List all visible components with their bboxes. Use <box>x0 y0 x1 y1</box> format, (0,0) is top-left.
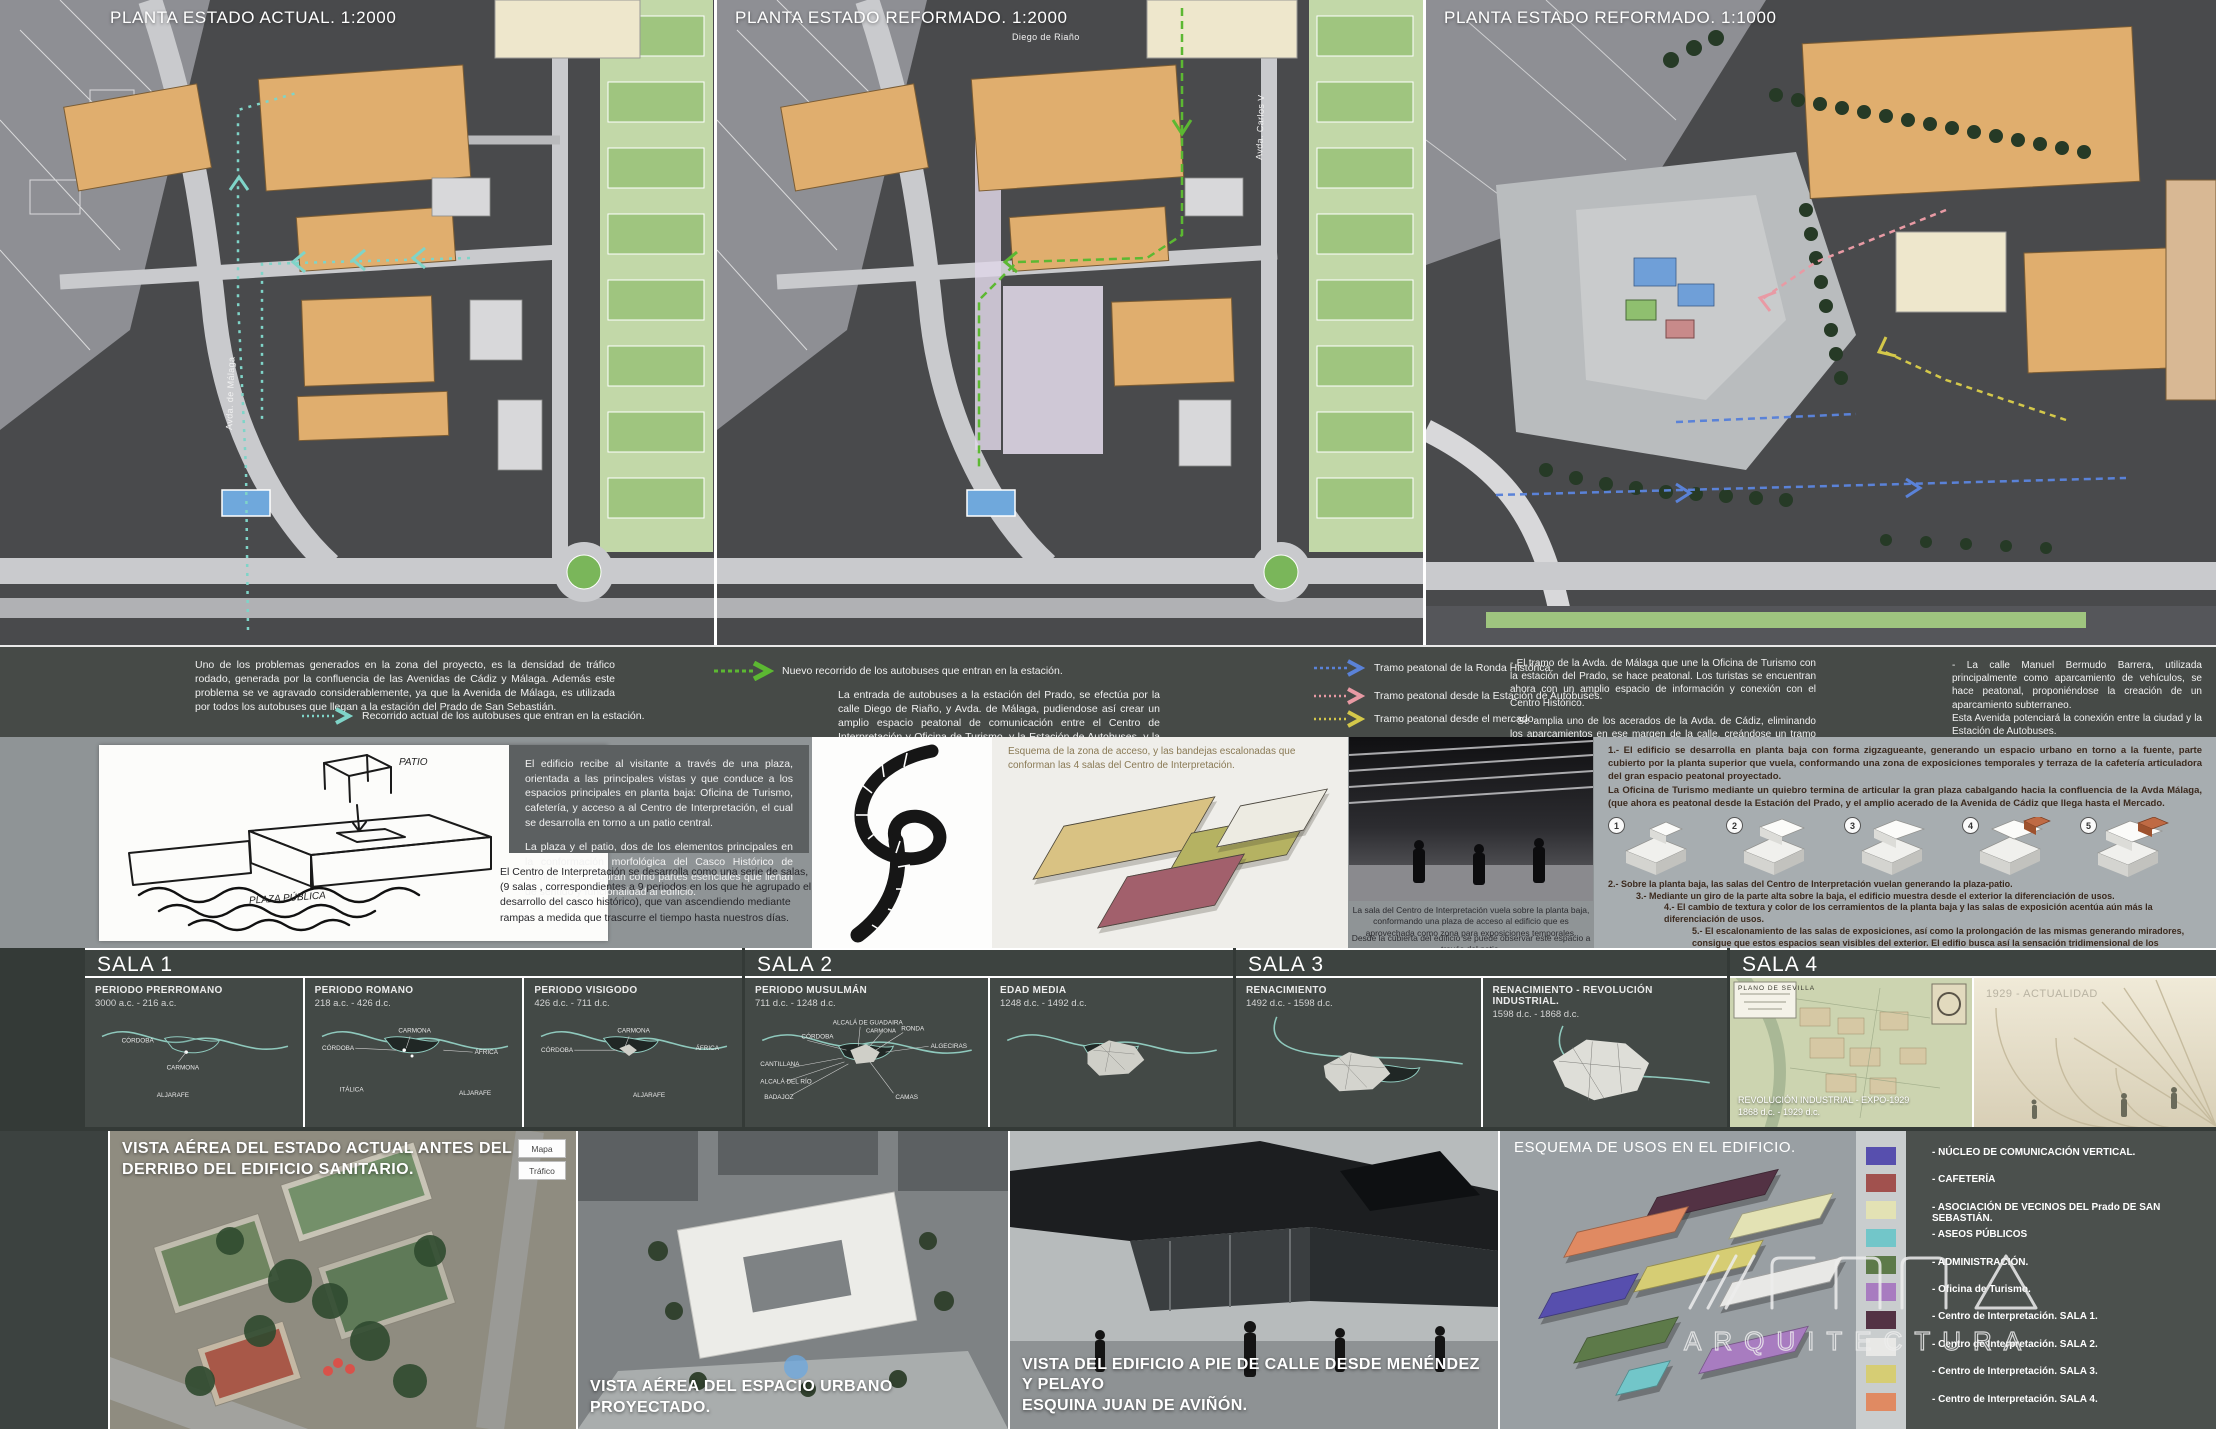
street-view-caption-line1: VISTA DEL EDIFICIO A PIE DE CALLE DESDE … <box>1022 1356 1480 1394</box>
tramo-estacion-arrow-icon <box>1312 687 1366 705</box>
period-map: CÓRDOBA CARMONA ÁFRICA ALJARAFE <box>534 1011 732 1103</box>
usos-legend-item: - ASEOS PÚBLICOS <box>1932 1229 2216 1256</box>
period-renacimiento: RENACIMIENTO 1492 d.c. - 1598 d.c. <box>1236 978 1481 1127</box>
period-edad-media: EDAD MEDIA 1248 d.c. - 1492 d.c. <box>990 978 1233 1127</box>
period-map: CÓRDOBA CARMONA ÁFRICA ITÁLICA ALJARAFE <box>315 1011 513 1103</box>
usos-legend-item: - NÚCLEO DE COMUNICACIÓN VERTICAL. <box>1932 1147 2216 1174</box>
svg-text:CAMAS: CAMAS <box>895 1094 918 1101</box>
usos-panel: ESQUEMA DE USOS EN EL EDIFICIO. <box>1500 1131 2216 1429</box>
massing-step-4: 4 <box>1962 817 2062 877</box>
svg-text:ALJARAFE: ALJARAFE <box>459 1090 491 1097</box>
sala-3-title: SALA 3 <box>1236 948 1727 978</box>
color-chip <box>1866 1311 1896 1329</box>
tramo-mercado-arrow-icon <box>1312 710 1366 728</box>
concept-text-block: El edificio recibe al visitante a través… <box>509 745 809 853</box>
svg-text:CARMONA: CARMONA <box>618 1028 651 1035</box>
interior-render-photo <box>1349 737 1593 901</box>
period-map: CÓRDOBA CARMONA ALJARAFE <box>95 1011 293 1103</box>
legend-new-route: Nuevo recorrido de los autobuses que ent… <box>712 661 1063 681</box>
period-dates: 3000 a.c. - 216 a.c. <box>95 998 293 1009</box>
vintage-period-name: REVOLUCIÓN INDUSTRIAL - EXPO-1929 <box>1738 1095 1909 1105</box>
scheme-tray-maroon <box>1097 854 1245 929</box>
legend-right-text-2: Esta Avenida potenciará la conexión entr… <box>1952 713 2202 737</box>
volumetric-note-4: 4.- El cambio de textura y color de los … <box>1664 902 2202 925</box>
period-dates: 1492 d.c. - 1598 d.c. <box>1246 998 1471 1009</box>
period-map <box>1246 1011 1468 1103</box>
svg-text:CÓRDOBA: CÓRDOBA <box>322 1043 355 1052</box>
usos-legend-item: - ADMINISTRACIÓN. <box>1932 1257 2216 1284</box>
massing-step-5: 5 <box>2080 817 2180 877</box>
usos-slab-nucleo <box>1538 1273 1639 1319</box>
svg-text:CÓRDOBA: CÓRDOBA <box>122 1035 155 1044</box>
vintage-map-title: PLANO DE SEVILLA <box>1738 985 1815 992</box>
projected-aerial-caption: VISTA AÉREA DEL ESPACIO URBANO PROYECTAD… <box>590 1377 1008 1419</box>
tramo-ronda-arrow-icon <box>1312 659 1366 677</box>
color-chip <box>1866 1338 1896 1356</box>
access-scheme-panel: Esquema de la zona de acceso, y las band… <box>992 737 1348 948</box>
svg-text:ALJARAFE: ALJARAFE <box>633 1092 665 1099</box>
usos-legend-item: - Centro de Interpretación. SALA 2. <box>1932 1339 2216 1366</box>
color-chip <box>1866 1229 1896 1247</box>
svg-text:CANTILLANA: CANTILLANA <box>760 1061 800 1068</box>
legend-bullet-1: - El tramo de la Avda. de Málaga que une… <box>1510 657 1816 710</box>
plan3-title: PLANTA ESTADO REFORMADO. 1:1000 <box>1444 8 1777 28</box>
vintage-period-dates: 1868 d.c. - 1929 d.c. <box>1738 1107 1820 1117</box>
color-chip <box>1866 1393 1896 1411</box>
presentation-board: Avda. de Málaga PLANTA ESTADO ACTUAL. 1:… <box>0 0 2216 1429</box>
svg-text:ITÁLICA: ITÁLICA <box>339 1084 364 1093</box>
interior-render-drawing <box>1349 737 1593 901</box>
period-map: CANTILLANA CÓRDOBA ALCALÁ DE GUADAIRA CA… <box>755 1011 977 1103</box>
step-number: 5 <box>2080 817 2097 834</box>
projected-aerial-panel: VISTA AÉREA DEL ESPACIO URBANO PROYECTAD… <box>578 1131 1008 1429</box>
period-name: PERIODO MUSULMÁN <box>755 985 978 996</box>
vintage-map-panel: PLANO DE SEVILLA REVOLUCIÓN INDUSTRIAL -… <box>1730 978 1972 1127</box>
color-chip <box>1866 1147 1896 1165</box>
street-label: Diego de Riaño <box>1012 32 1080 42</box>
left-margin <box>0 1131 108 1429</box>
svg-text:CARMONA: CARMONA <box>866 1029 896 1035</box>
usos-legend-list: - NÚCLEO DE COMUNICACIÓN VERTICAL. - CAF… <box>1906 1131 2216 1429</box>
map-button[interactable]: Mapa <box>518 1139 566 1158</box>
new-route-arrow-icon <box>712 661 774 681</box>
vintage-map-caption: REVOLUCIÓN INDUSTRIAL - EXPO-1929 1868 d… <box>1738 1094 1909 1119</box>
plan2-title: PLANTA ESTADO REFORMADO. 1:2000 <box>735 8 1068 28</box>
plan-estado-actual-map: Avda. de Málaga <box>0 0 714 645</box>
access-scheme-caption: Esquema de la zona de acceso, y las band… <box>1008 745 1318 772</box>
period-name: PERIODO PRERROMANO <box>95 985 293 996</box>
plan-reformado-2000-map: Diego de Riaño Avda. Carlos V <box>717 0 1423 645</box>
massing-step-1: 1 <box>1608 817 1708 877</box>
massing-step-2: 2 <box>1726 817 1826 877</box>
period-name: PERIODO VISIGODO <box>534 985 732 996</box>
concept-para-3: El Centro de Interpretación se desarroll… <box>500 865 816 926</box>
svg-text:ALCALÁ DE GUADAIRA: ALCALÁ DE GUADAIRA <box>833 1018 904 1027</box>
street-view-panel: VISTA DEL EDIFICIO A PIE DE CALLE DESDE … <box>1010 1131 1498 1429</box>
svg-text:ÁFRICA: ÁFRICA <box>696 1043 720 1052</box>
period-dates: 711 d.c. - 1248 d.c. <box>755 998 978 1009</box>
svg-text:ALCALÁ DEL RÍO: ALCALÁ DEL RÍO <box>760 1076 811 1085</box>
concept-para-1: El edificio recibe al visitante a través… <box>525 757 793 830</box>
salas-row: SALA 1 PERIODO PRERROMANO 3000 a.c. - 21… <box>0 948 2216 1131</box>
period-dates: 1598 d.c. - 1868 d.c. <box>1493 1009 1718 1020</box>
step-number: 1 <box>1608 817 1625 834</box>
traffic-button[interactable]: Tráfico <box>518 1161 566 1180</box>
sala-2-title: SALA 2 <box>745 948 1233 978</box>
volumetric-notes-panel: 1.- El edificio se desarrolla en planta … <box>1594 737 2216 948</box>
period-name: PERIODO ROMANO <box>315 985 513 996</box>
svg-text:CÓRDOBA: CÓRDOBA <box>801 1031 834 1040</box>
massing-step-3: 3 <box>1844 817 1944 877</box>
usos-slab-sala4 <box>1563 1206 1689 1258</box>
plan-reformado-2000: Diego de Riaño Avda. Carlos V PLANTA EST… <box>717 0 1423 645</box>
svg-text:CARMONA: CARMONA <box>167 1065 200 1072</box>
period-musulman: PERIODO MUSULMÁN 711 d.c. - 1248 d.c. CA… <box>745 978 988 1127</box>
svg-text:CARMONA: CARMONA <box>398 1028 431 1035</box>
color-chip <box>1866 1283 1896 1301</box>
usos-slab-turismo <box>1698 1326 1809 1374</box>
usos-legend-item: - ASOCIACIÓN DE VECINOS DEL Prado DE SAN… <box>1932 1202 2216 1229</box>
spiral-stair-drawing <box>812 737 992 948</box>
street-view-caption: VISTA DEL EDIFICIO A PIE DE CALLE DESDE … <box>1022 1355 1482 1417</box>
concept-band: PATIO PLAZA PÚBLICA El edificio recibe a… <box>0 737 2216 948</box>
sala-3-section: SALA 3 RENACIMIENTO 1492 d.c. - 1598 d.c… <box>1236 948 1727 1131</box>
usos-chip-strip <box>1856 1131 1906 1429</box>
new-route-label: Nuevo recorrido de los autobuses que ent… <box>782 665 1063 677</box>
period-name: RENACIMIENTO - REVOLUCIÓN INDUSTRIAL. <box>1493 985 1718 1007</box>
current-route-arrow-icon <box>300 707 354 725</box>
legend-right-text-1: - La calle Manuel Bermudo Barrera, utili… <box>1952 660 2202 711</box>
plan-estado-actual: Avda. de Málaga PLANTA ESTADO ACTUAL. 1:… <box>0 0 714 645</box>
period-map <box>1493 1022 1715 1114</box>
volumetric-note-1b: La Oficina de Turismo mediante un quiebr… <box>1608 785 2202 811</box>
actualidad-label: 1929 - ACTUALIDAD <box>1986 988 2098 1000</box>
color-chip <box>1866 1201 1896 1219</box>
actualidad-photo-panel: 1929 - ACTUALIDAD <box>1974 978 2216 1127</box>
period-name: EDAD MEDIA <box>1000 985 1223 996</box>
period-revolucion-industrial: RENACIMIENTO - REVOLUCIÓN INDUSTRIAL. 15… <box>1483 978 1728 1127</box>
volumetric-note-2: 2.- Sobre la planta baja, las salas del … <box>1608 879 2202 891</box>
usos-legend-item: - Centro de Interpretación. SALA 3. <box>1932 1366 2216 1393</box>
period-dates: 426 d.c. - 711 d.c. <box>534 998 732 1009</box>
period-map <box>1000 1011 1222 1103</box>
aerial-photo-panel: VISTA AÉREA DEL ESTADO ACTUAL ANTES DEL … <box>110 1131 576 1429</box>
sala-4-section: SALA 4 <box>1730 948 2216 1131</box>
plan-reformado-1000-map <box>1426 0 2216 645</box>
site-plans-row: Avda. de Málaga PLANTA ESTADO ACTUAL. 1:… <box>0 0 2216 645</box>
usos-legend-item: - CAFETERÍA <box>1932 1174 2216 1201</box>
period-romano: PERIODO ROMANO 218 a.c. - 426 d.c. CÓRDO… <box>305 978 523 1127</box>
legend-current-route: Recorrido actual de los autobuses que en… <box>300 707 645 725</box>
spiral-stair-photo <box>812 737 992 948</box>
current-route-label: Recorrido actual de los autobuses que en… <box>362 710 645 722</box>
sala-1-title: SALA 1 <box>85 948 742 978</box>
period-prerromano: PERIODO PRERROMANO 3000 a.c. - 216 a.c. … <box>85 978 303 1127</box>
svg-text:ALGECIRAS: ALGECIRAS <box>931 1043 967 1050</box>
usos-legend-item: - Oficina de Turismo. <box>1932 1284 2216 1311</box>
bottom-row: VISTA AÉREA DEL ESTADO ACTUAL ANTES DEL … <box>0 1131 2216 1429</box>
legend-tramo-mercado: Tramo peatonal desde el mercado. <box>1312 710 1536 728</box>
actualidad-photo-drawing <box>1974 978 2216 1127</box>
usos-legend-item: - Centro de Interpretación. SALA 4. <box>1932 1394 2216 1421</box>
color-chip <box>1866 1256 1896 1274</box>
color-chip <box>1866 1174 1896 1192</box>
usos-legend-item: - Centro de Interpretación. SALA 1. <box>1932 1311 2216 1338</box>
sala-2-section: SALA 2 PERIODO MUSULMÁN 711 d.c. - 1248 … <box>745 948 1233 1131</box>
volumetric-note-3: 3.- Mediante un giro de la parte alta so… <box>1636 891 2202 903</box>
svg-text:CÓRDOBA: CÓRDOBA <box>541 1045 574 1054</box>
period-dates: 218 a.c. - 426 d.c. <box>315 998 513 1009</box>
plan-reformado-1000: PLANTA ESTADO REFORMADO. 1:1000 <box>1426 0 2216 645</box>
svg-text:ÁFRICA: ÁFRICA <box>474 1047 498 1056</box>
step-number: 4 <box>1962 817 1979 834</box>
period-visigodo: PERIODO VISIGODO 426 d.c. - 711 d.c. CÓR… <box>524 978 742 1127</box>
sala-1-section: SALA 1 PERIODO PRERROMANO 3000 a.c. - 21… <box>85 948 742 1131</box>
sketch-note-patio: PATIO <box>399 757 428 768</box>
step-number: 3 <box>1844 817 1861 834</box>
color-chip <box>1866 1365 1896 1383</box>
aerial-caption: VISTA AÉREA DEL ESTADO ACTUAL ANTES DEL … <box>122 1139 542 1181</box>
routes-legend-strip: Uno de los problemas generados en la zon… <box>0 645 2216 739</box>
usos-slab-administracion <box>1573 1316 1679 1363</box>
street-view-caption-line2: ESQUINA JUAN DE AVIÑÓN. <box>1022 1397 1248 1414</box>
volumetric-note-1a: 1.- El edificio se desarrolla en planta … <box>1608 745 2202 783</box>
period-dates: 1248 d.c. - 1492 d.c. <box>1000 998 1223 1009</box>
plan1-title: PLANTA ESTADO ACTUAL. 1:2000 <box>110 8 396 28</box>
legend-right-column: - La calle Manuel Bermudo Barrera, utili… <box>1952 659 2202 738</box>
svg-text:RONDA: RONDA <box>901 1026 925 1033</box>
usos-title: ESQUEMA DE USOS EN EL EDIFICIO. <box>1514 1139 1796 1156</box>
fountain <box>967 490 1015 516</box>
svg-text:BADAJOZ: BADAJOZ <box>764 1094 793 1101</box>
sala-4-title: SALA 4 <box>1730 948 2216 978</box>
usos-slab-aseos <box>1615 1360 1671 1396</box>
svg-text:ALJARAFE: ALJARAFE <box>157 1092 189 1099</box>
step-number: 2 <box>1726 817 1743 834</box>
massing-steps-row: 1 2 <box>1608 817 2202 877</box>
period-name: RENACIMIENTO <box>1246 985 1471 996</box>
